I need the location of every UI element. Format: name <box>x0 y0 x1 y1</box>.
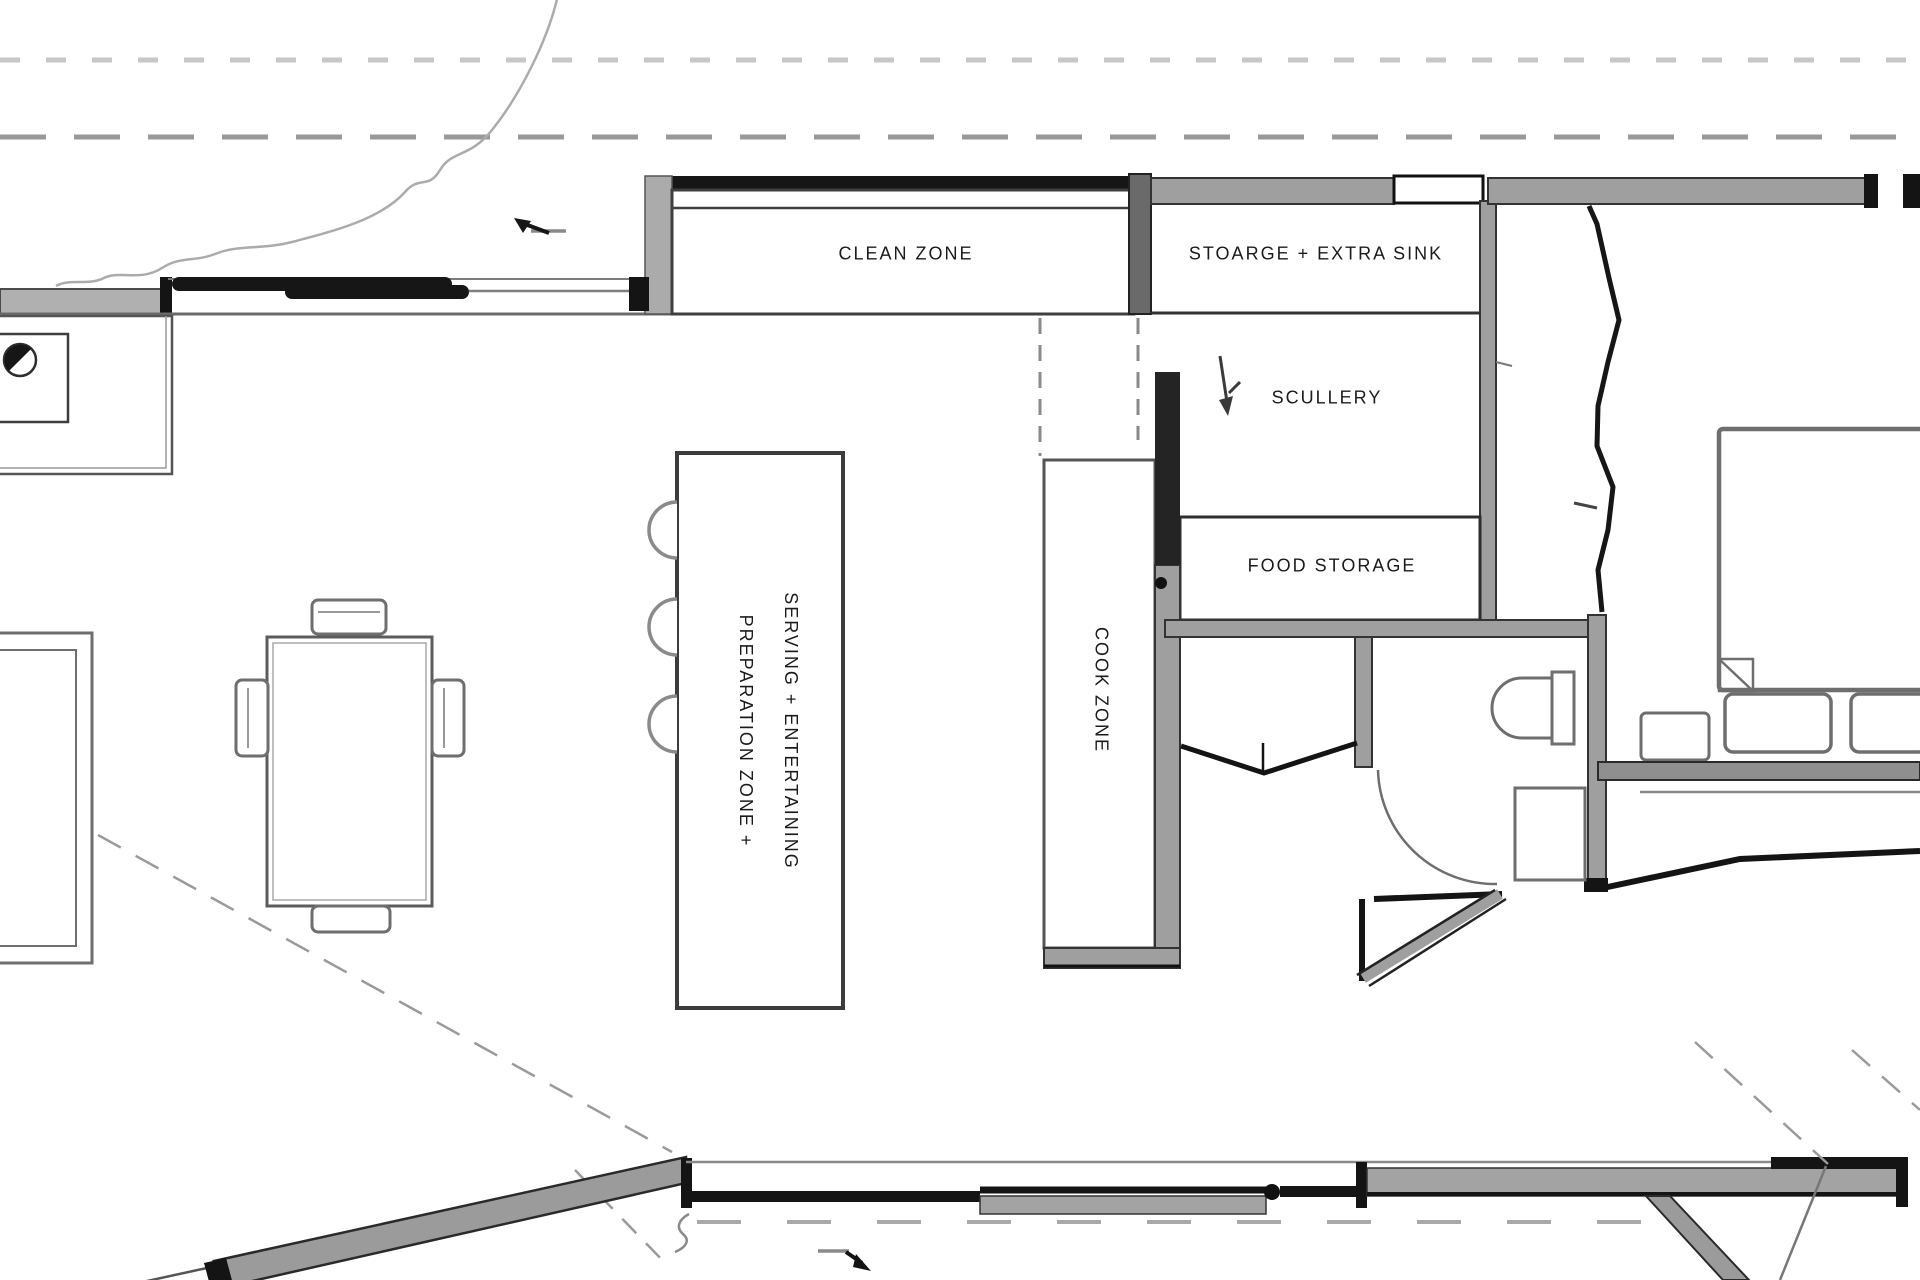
left-counter <box>0 316 172 474</box>
label-storage-extra-sink: STOARGE + EXTRA SINK <box>1189 244 1443 265</box>
label-island-prep-line: PREPARATION ZONE + <box>723 592 768 870</box>
top-left-wall <box>0 277 672 317</box>
floor-plan-linework <box>0 0 1920 1280</box>
door-swing-arc <box>1378 770 1497 884</box>
toilet-icon <box>1492 672 1574 744</box>
sofa <box>0 633 92 963</box>
terrain-squiggle-line <box>56 0 558 286</box>
bed <box>1719 429 1920 752</box>
stool-icon <box>649 599 677 655</box>
bed-pillow <box>1851 694 1920 752</box>
dining-table <box>267 637 432 906</box>
stool-icon <box>649 502 677 558</box>
bottom-wall <box>686 1157 1908 1222</box>
stool-icon <box>649 696 677 752</box>
label-cook-zone: COOK ZONE <box>1091 627 1112 753</box>
deck-wall-diagonal-left <box>138 1157 692 1280</box>
kitchen-floor-plan: CLEAN ZONE STOARGE + EXTRA SINK SCULLERY… <box>0 0 1920 1280</box>
bedroom-bottom-wall <box>1598 762 1920 889</box>
bed-pillow <box>1725 694 1831 752</box>
chair <box>432 680 464 756</box>
arrow-left-icon <box>514 218 566 233</box>
chair <box>312 906 390 932</box>
nightstand <box>1641 713 1709 760</box>
label-preparation-zone: SERVING + ENTERTAINING PREPARATION ZONE … <box>723 592 813 870</box>
label-food-storage: FOOD STORAGE <box>1248 556 1417 577</box>
cook-zone-counter <box>1044 372 1180 968</box>
label-island-serving-line: SERVING + ENTERTAINING <box>768 592 813 870</box>
sliding-door-panel <box>285 285 469 299</box>
vanity <box>1515 788 1585 880</box>
revision-hook-mark <box>675 1214 689 1252</box>
chair <box>236 680 268 756</box>
window-box <box>1394 176 1483 203</box>
arrow-right-icon <box>818 1251 871 1271</box>
label-scullery: SCULLERY <box>1272 388 1383 409</box>
chair <box>312 600 386 634</box>
bifold-door <box>1181 743 1357 773</box>
curtain-wavy-line <box>1574 206 1619 612</box>
top-right-wall <box>1488 174 1920 208</box>
arrow-down-icon <box>1219 356 1240 416</box>
label-clean-zone: CLEAN ZONE <box>838 244 973 265</box>
zone-dashed-dividers <box>1040 318 1138 456</box>
